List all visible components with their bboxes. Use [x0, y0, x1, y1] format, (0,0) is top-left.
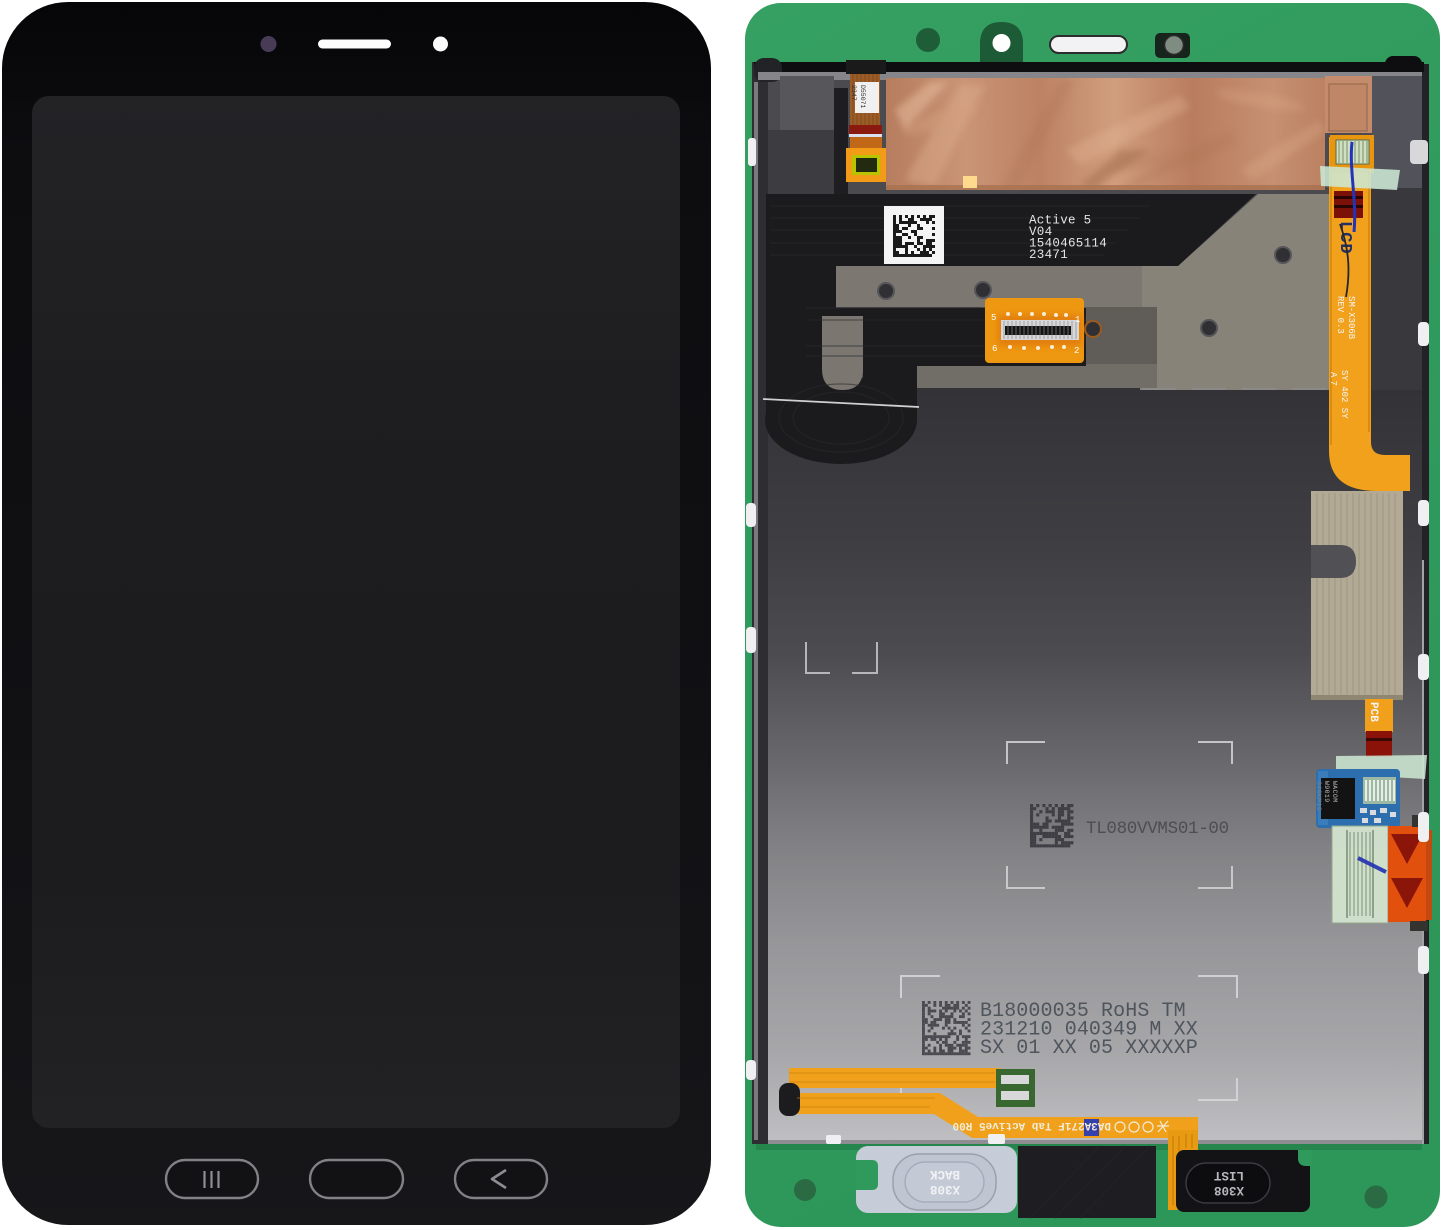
svg-text:2: 2 — [1074, 346, 1079, 356]
svg-text:6: 6 — [992, 344, 997, 354]
svg-text:BACK: BACK — [929, 1167, 960, 1181]
svg-text:346KM19: 346KM19 — [1315, 781, 1322, 811]
svg-text:X308: X308 — [1214, 1183, 1244, 1197]
svg-text:X308: X308 — [930, 1182, 960, 1196]
svg-text:SM-X306B: SM-X306B — [1346, 296, 1356, 340]
svg-text:PCB: PCB — [1367, 702, 1379, 722]
svg-text:TL080VVMS01-00: TL080VVMS01-00 — [1086, 819, 1229, 839]
svg-text:D55071: D55071 — [859, 85, 866, 109]
svg-text:1: 1 — [1075, 315, 1080, 325]
svg-text:2347: 2347 — [850, 85, 857, 101]
svg-text:LIST: LIST — [1213, 1168, 1244, 1182]
svg-text:W9019: W9019 — [1323, 781, 1330, 803]
svg-text:WACOM: WACOM — [1331, 781, 1338, 803]
svg-text:A7: A7 — [1328, 372, 1338, 389]
svg-text:DA3A271F Tab Active5 R00: DA3A271F Tab Active5 R00 — [953, 1119, 1111, 1131]
svg-text:REV 0.3: REV 0.3 — [1335, 296, 1345, 334]
svg-text:SY 402 SY: SY 402 SY — [1339, 370, 1349, 419]
svg-text:SX 01 XX 05 XXXXXP: SX 01 XX 05 XXXXXP — [980, 1037, 1198, 1060]
svg-text:5: 5 — [991, 313, 996, 323]
svg-text:23471: 23471 — [1029, 248, 1068, 262]
